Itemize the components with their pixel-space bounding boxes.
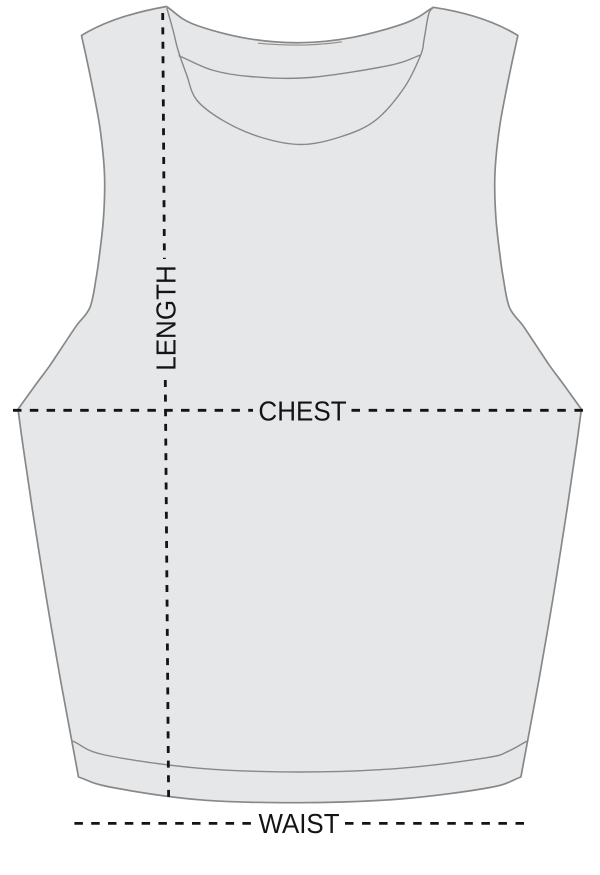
svg-text:CHEST: CHEST [258, 396, 346, 427]
svg-text:LENGTH: LENGTH [151, 265, 182, 370]
svg-text:WAIST: WAIST [258, 808, 339, 839]
